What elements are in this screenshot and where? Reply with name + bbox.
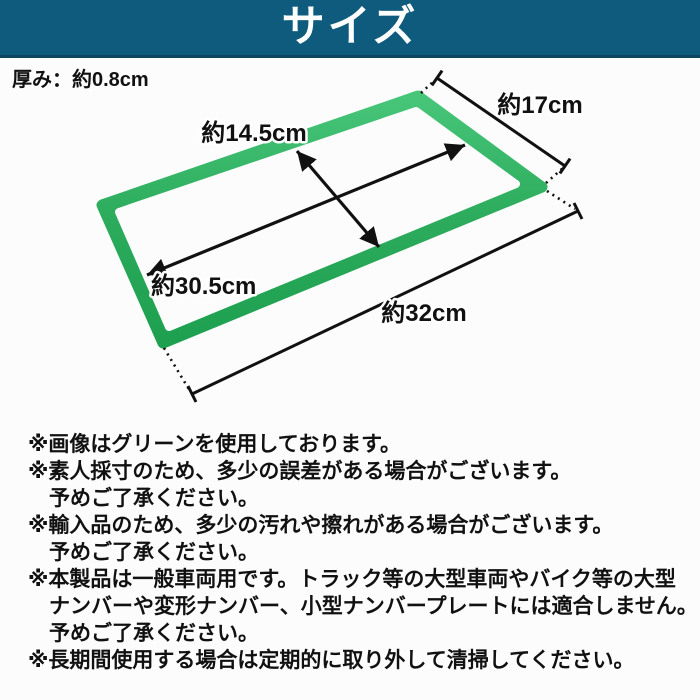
note-line: ※長期間使用する場合は定期的に取り外して清掃してください。 — [28, 647, 694, 674]
note-line: ※本製品は一般車両用です。トラック等の大型車両やバイク等の大型 — [28, 566, 694, 593]
note-line: ナンバーや変形ナンバー、小型ナンバープレートには適合しません。 — [28, 593, 694, 620]
dim-label-30-5cm: 約30.5cm — [151, 272, 256, 300]
note-line: ※素人採寸のため、多少の誤差がある場合がございます。 — [28, 458, 694, 485]
dim-label-32cm: 約32cm — [381, 299, 466, 327]
extension-line — [164, 348, 190, 391]
dim-tick — [560, 159, 570, 174]
dim-label-17cm: 約17cm — [497, 91, 582, 119]
note-line: 予めご了承ください。 — [28, 485, 694, 512]
note-line: 予めご了承ください。 — [28, 539, 694, 566]
product-size-image: サイズ 厚み：約0.8cm — [0, 0, 700, 700]
note-line: ※画像はグリーンを使用しております。 — [28, 431, 694, 458]
size-diagram: 約17cm 約14.5cm 約30.5cm 約32cm — [0, 0, 700, 430]
extension-line — [547, 191, 575, 209]
note-line: 予めご了承ください。 — [28, 620, 694, 647]
dim-label-14-5cm: 約14.5cm — [201, 119, 306, 147]
note-line: ※輸入品のため、多少の汚れや擦れがある場合がございます。 — [28, 512, 694, 539]
notes: ※画像はグリーンを使用しております。 ※素人採寸のため、多少の誤差がある場合がご… — [28, 431, 694, 674]
dim-tick — [432, 71, 442, 86]
